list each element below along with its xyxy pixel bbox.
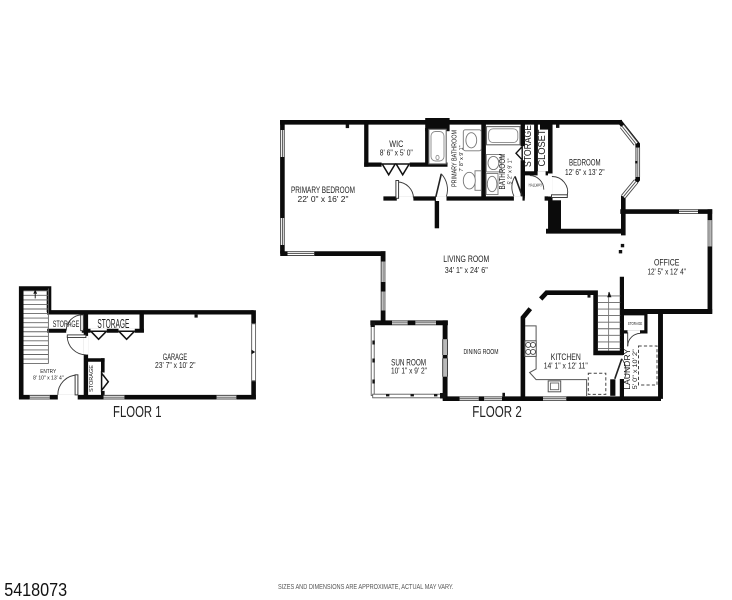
svg-text:22' 0" x 16' 2": 22' 0" x 16' 2" [298,195,349,204]
svg-text:5' 0" x 10' 2": 5' 0" x 10' 2" [632,349,639,389]
svg-text:DINING ROOM: DINING ROOM [464,347,499,356]
svg-text:STORAGE: STORAGE [89,365,95,392]
svg-text:OFFICE: OFFICE [654,256,680,267]
svg-text:LAUNDRY: LAUNDRY [622,349,632,390]
svg-text:BEDROOM: BEDROOM [569,156,601,167]
svg-text:23' 7" x 10' 2": 23' 7" x 10' 2" [155,361,196,370]
svg-text:34' 1" x 24' 6": 34' 1" x 24' 6" [445,266,488,275]
svg-text:FLOOR 1: FLOOR 1 [113,404,162,421]
svg-text:BATHROOM: BATHROOM [498,154,507,190]
svg-text:WIC: WIC [389,138,403,149]
svg-text:7' 8" x 9' 1": 7' 8" x 9' 1" [459,146,465,172]
svg-text:PRIMARY BATHROOM: PRIMARY BATHROOM [450,130,459,187]
svg-text:STORAGE: STORAGE [53,319,80,329]
svg-text:ENTRY: ENTRY [40,369,56,375]
svg-text:8' 10" x 13' 4": 8' 10" x 13' 4" [33,375,64,381]
svg-text:SIZES AND DIMENSIONS ARE APPRO: SIZES AND DIMENSIONS ARE APPROXIMATE, AC… [278,582,454,591]
svg-text:5' 2" x 9' 1": 5' 2" x 9' 1" [507,159,513,185]
svg-text:HALLWAY: HALLWAY [529,182,543,187]
svg-text:8' 6" x 5' 0": 8' 6" x 5' 0" [380,149,413,158]
svg-text:14' 1" x 12' 11": 14' 1" x 12' 11" [544,361,588,370]
svg-text:5418073: 5418073 [4,579,67,600]
svg-text:CLOSET: CLOSET [537,129,548,166]
svg-text:STORAGE: STORAGE [628,321,643,326]
svg-text:STORAGE: STORAGE [523,125,534,167]
svg-text:12' 5" x 12' 4": 12' 5" x 12' 4" [647,267,686,276]
svg-text:LIVING ROOM: LIVING ROOM [443,253,489,264]
svg-text:10' 1" x 9' 2": 10' 1" x 9' 2" [391,366,427,375]
svg-text:FLOOR 2: FLOOR 2 [472,404,522,421]
svg-text:STORAGE: STORAGE [97,317,129,331]
svg-text:12' 6" x 13' 2": 12' 6" x 13' 2" [565,168,605,177]
